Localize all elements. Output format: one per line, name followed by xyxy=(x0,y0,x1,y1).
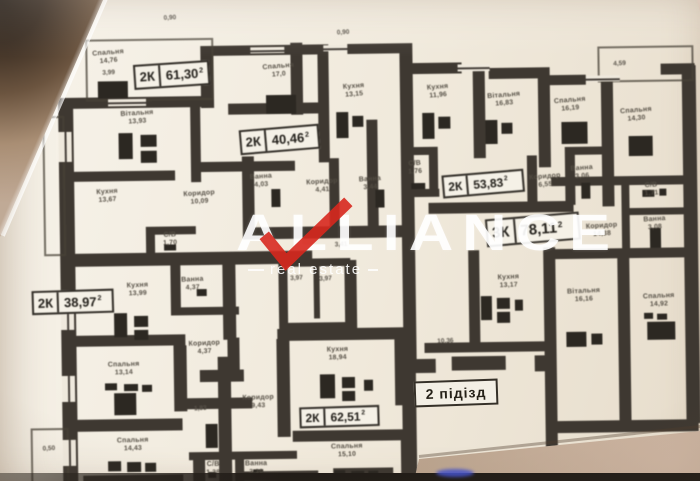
room-label: Кухня13,15 xyxy=(343,82,366,99)
wall xyxy=(199,161,295,172)
wall xyxy=(429,149,439,193)
entrance-label-text: 2 підізд xyxy=(425,384,486,402)
furniture-icon xyxy=(657,314,667,320)
room-label: Коридор10,09 xyxy=(183,189,215,206)
wall xyxy=(401,429,416,479)
wall xyxy=(293,429,401,442)
room-label: Кухня13,99 xyxy=(127,281,149,297)
window xyxy=(58,132,71,162)
wall xyxy=(146,227,155,255)
wall xyxy=(682,65,700,423)
wall xyxy=(601,76,615,206)
furniture-icon xyxy=(336,112,348,138)
furniture-icon xyxy=(145,463,156,472)
wall xyxy=(401,189,439,198)
blue-pen-mark xyxy=(436,469,474,477)
wall xyxy=(276,339,290,437)
furniture-icon xyxy=(118,133,132,159)
furniture-icon xyxy=(342,377,355,388)
wall xyxy=(473,66,486,158)
room-label: С/В1,70 xyxy=(163,231,178,247)
furniture-icon xyxy=(114,393,136,415)
room-label: Спальня14,76 xyxy=(92,48,125,66)
furniture-icon xyxy=(352,116,363,127)
room-label: Ванна4,37 xyxy=(181,276,204,293)
furniture-icon xyxy=(342,391,355,401)
furniture-icon xyxy=(629,136,653,156)
wall xyxy=(550,75,586,86)
wall xyxy=(468,250,480,346)
wall xyxy=(538,77,551,167)
room-label: Спальня13,14 xyxy=(108,361,140,377)
dimension-label: 1,83 xyxy=(194,405,207,413)
wall xyxy=(394,327,408,405)
window xyxy=(108,99,146,107)
dimension-label: 0,90 xyxy=(337,29,350,37)
furniture-icon xyxy=(497,312,510,323)
wall xyxy=(428,201,573,214)
wall xyxy=(170,262,181,310)
furniture-icon xyxy=(411,183,425,189)
room-label: Ванна3,06 xyxy=(570,164,594,181)
room-label: Спальня16,19 xyxy=(554,96,587,114)
room-label: Кухня13,17 xyxy=(497,273,519,289)
red-checkmark-icon xyxy=(255,192,359,280)
room-label: Спальня14,43 xyxy=(117,437,149,453)
wall xyxy=(222,260,236,340)
room-label: Кухня18,94 xyxy=(327,346,349,362)
window xyxy=(323,45,347,51)
photo-bottom-edge xyxy=(0,473,700,481)
furniture-icon xyxy=(364,380,373,391)
wall xyxy=(621,179,630,257)
room-label: Кухня13,67 xyxy=(96,188,118,205)
dimension-label: 3,99 xyxy=(102,69,115,77)
room-label: С/В1,76 xyxy=(407,160,422,176)
wall xyxy=(617,251,631,423)
apartment-area-badge: 2К62,512 xyxy=(299,405,380,429)
room-label: Ванна4,03 xyxy=(250,173,273,190)
furniture-icon xyxy=(141,151,157,163)
furniture-icon xyxy=(134,316,148,327)
room-label: Ванна3,08 xyxy=(643,215,666,232)
room-label: Коридор9,43 xyxy=(242,394,274,410)
furniture-icon xyxy=(105,383,117,390)
wall xyxy=(452,356,506,371)
entrance-label: 2 підізд xyxy=(414,379,499,408)
furniture-icon xyxy=(266,95,296,114)
room-label: Ванна3,44 xyxy=(359,175,382,192)
wall xyxy=(565,146,610,155)
apartment-area-badge: 2К38,972 xyxy=(31,289,114,316)
room-label: Спальня17,0 xyxy=(262,62,295,80)
window xyxy=(62,376,75,402)
window xyxy=(586,75,620,81)
furniture-icon xyxy=(124,384,138,391)
room-label: Коридор4,37 xyxy=(188,339,220,356)
furniture-icon xyxy=(561,122,587,144)
furniture-icon xyxy=(127,462,141,472)
room-label: Вітальня16,16 xyxy=(567,287,601,304)
window xyxy=(458,64,490,71)
wall xyxy=(279,322,351,331)
room-label: С/В1,71 xyxy=(644,181,659,197)
room-label: Коридор6,55 xyxy=(529,172,562,190)
apartment-area-badge: 2К53,832 xyxy=(441,169,525,199)
wall xyxy=(64,418,182,432)
wall xyxy=(535,355,547,371)
wall xyxy=(546,419,699,433)
dimension-label: 10,36 xyxy=(437,337,454,345)
room-label: Спальня14,92 xyxy=(643,292,675,309)
wall xyxy=(63,170,175,182)
room-label: Вітальня13,93 xyxy=(120,109,154,127)
furniture-icon xyxy=(481,296,492,320)
dimension-label: 0,90 xyxy=(163,14,176,22)
furniture-icon xyxy=(134,330,148,340)
furniture-icon xyxy=(98,81,128,98)
dimension-label: 4,59 xyxy=(613,60,626,68)
apartment-area-badge: 2К40,462 xyxy=(239,124,321,156)
window xyxy=(63,440,76,466)
wall xyxy=(171,307,239,316)
room-label: Кухня11,96 xyxy=(427,83,450,100)
photo-of-floor-plan: Спальня14,76Вітальня13,93Кухня13,67Корид… xyxy=(0,0,700,481)
room-label: Спальня15,10 xyxy=(331,443,363,459)
room-label: Спальня14,30 xyxy=(620,106,653,124)
furniture-icon xyxy=(647,321,675,339)
furniture-icon xyxy=(206,424,218,448)
furniture-icon xyxy=(375,190,384,208)
dimension-label: 0,50 xyxy=(42,445,55,453)
furniture-icon xyxy=(581,183,590,199)
furniture-icon xyxy=(142,385,152,392)
furniture-icon xyxy=(501,123,512,134)
furniture-icon xyxy=(114,313,127,337)
furniture-icon xyxy=(141,135,157,147)
furniture-icon xyxy=(659,189,666,196)
room-label: Вітальня16,83 xyxy=(487,90,521,108)
wall xyxy=(489,67,540,79)
furniture-icon xyxy=(591,333,602,344)
furniture-icon xyxy=(515,300,523,311)
wall xyxy=(400,62,462,74)
apartment-area-badge: 3К78,112 xyxy=(485,212,581,248)
room-label: Коридор14,38 xyxy=(586,221,618,238)
window xyxy=(250,47,284,53)
furniture-icon xyxy=(497,298,510,309)
furniture-icon xyxy=(438,117,450,129)
wall xyxy=(622,207,688,215)
apartment-area-badge: 2К61,302 xyxy=(133,60,210,90)
furniture-icon xyxy=(566,332,586,347)
furniture-icon xyxy=(422,113,434,139)
furniture-icon xyxy=(485,120,497,144)
furniture-icon xyxy=(320,374,335,398)
furniture-icon xyxy=(108,461,121,471)
furniture-icon xyxy=(644,313,653,319)
